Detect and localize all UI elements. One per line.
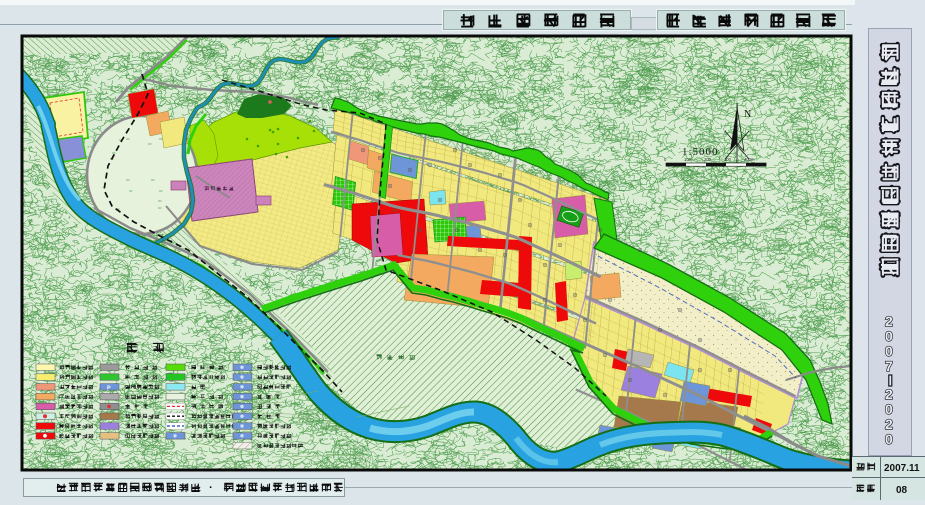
svg-text:·: · bbox=[209, 482, 213, 494]
